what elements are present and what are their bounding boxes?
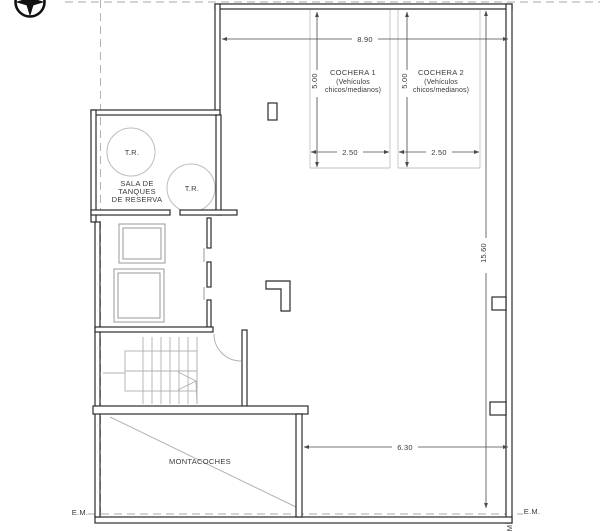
wall-niche-1	[492, 297, 506, 310]
elevator-shafts	[114, 224, 204, 322]
wall-niche-2	[490, 402, 506, 415]
wall-tankroom-bottom-left	[91, 210, 170, 215]
door-arc	[214, 334, 241, 361]
em-right-label: E.M.	[524, 507, 541, 516]
wall-tankroom-right	[216, 115, 221, 215]
wall-elevator-seg3	[207, 300, 211, 327]
wall-top	[215, 4, 512, 9]
wall-bottom	[95, 517, 512, 523]
wall-montacoches-right	[296, 414, 302, 517]
staircase	[103, 337, 197, 404]
elevator-shaft-1	[119, 224, 165, 263]
cochera2-title: COCHERA 2	[418, 68, 464, 77]
wall-upper-left-vertical	[215, 4, 220, 115]
cochera1-title: COCHERA 1	[330, 68, 376, 77]
tank1-label: T.R.	[125, 148, 140, 157]
dim-bottom-width: 6.30	[397, 443, 412, 452]
wall-elevator-seg1	[207, 218, 211, 248]
wall-door-side	[242, 330, 247, 408]
cochera2-sub1: (Vehículos	[424, 79, 458, 86]
em-left-label: E.M.	[72, 508, 89, 517]
column-2-L	[266, 281, 290, 311]
wall-tankroom-bottom-right	[180, 210, 237, 215]
cochera1-sub1: (Vehículos	[336, 79, 370, 86]
montacoches-label: MONTACOCHES	[169, 457, 231, 466]
floor-plan-drawing: 8.90 2.50 2.50 6.30 5.00 5.00 15.60 COCH…	[0, 0, 600, 532]
dim-text-backings	[312, 35, 491, 452]
cochera1-sub2: chicos/medianos)	[325, 87, 381, 94]
north-arrow-icon	[16, 0, 45, 17]
wall-stair-top	[95, 327, 213, 332]
stair-direction-arrow	[178, 372, 196, 390]
dim-bay2-width: 2.50	[431, 148, 446, 157]
elevator-shaft-2	[114, 269, 164, 322]
wall-left-lower	[95, 222, 100, 517]
em-rotated-glyph: M	[505, 525, 514, 532]
tank-room-line3: DE RESERVA	[112, 195, 163, 204]
wall-tankroom-top	[91, 110, 220, 115]
dim-bay2-depth: 5.00	[400, 73, 409, 88]
wall-elevator-seg2	[207, 262, 211, 287]
tank2-label: T.R.	[185, 184, 200, 193]
dim-top-width: 8.90	[357, 35, 372, 44]
dim-bay1-width: 2.50	[342, 148, 357, 157]
wall-left-upper	[91, 110, 96, 222]
wall-montacoches-top	[93, 406, 308, 414]
floor-plan-page: 8.90 2.50 2.50 6.30 5.00 5.00 15.60 COCH…	[0, 0, 600, 532]
wall-right	[506, 4, 512, 523]
cochera2-sub2: chicos/medianos)	[413, 87, 469, 94]
dim-right-height: 15.60	[479, 243, 488, 263]
column-1	[268, 103, 277, 120]
dim-bay1-depth: 5.00	[310, 73, 319, 88]
